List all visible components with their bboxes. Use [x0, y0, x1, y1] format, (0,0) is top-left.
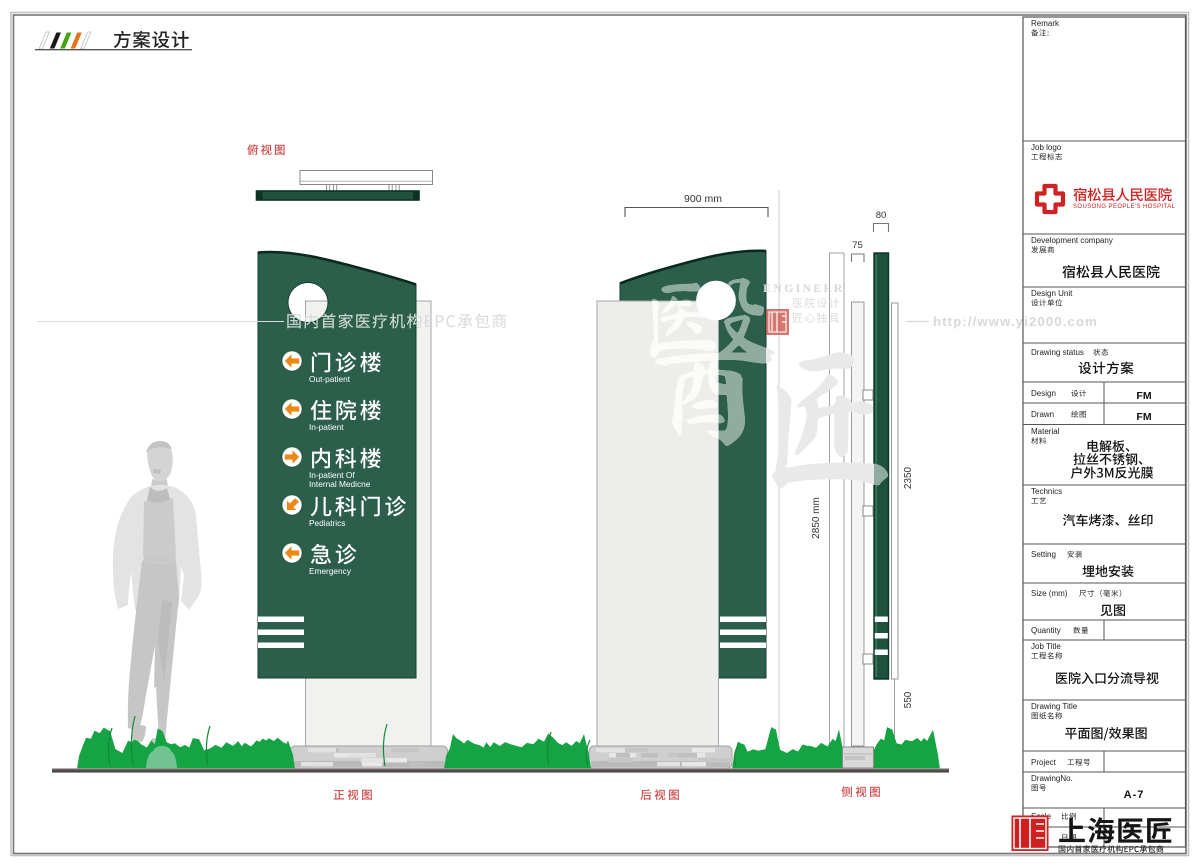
svg-text:Material: Material — [1031, 427, 1060, 436]
svg-text:FM: FM — [1136, 411, 1151, 423]
svg-text:80: 80 — [876, 210, 887, 221]
svg-text:Drawn: Drawn — [1031, 410, 1054, 419]
svg-text:Drawing Title: Drawing Title — [1031, 702, 1078, 711]
svg-text:Setting: Setting — [1031, 550, 1056, 559]
svg-text:In-patient: In-patient — [309, 422, 344, 432]
svg-text:Development company: Development company — [1031, 236, 1113, 245]
svg-text:Remark: Remark — [1031, 19, 1060, 28]
svg-text:Job logo: Job logo — [1031, 143, 1062, 152]
svg-text:Size (mm): Size (mm) — [1031, 589, 1068, 598]
svg-text:Design Unit: Design Unit — [1031, 289, 1073, 298]
svg-text:Project: Project — [1031, 758, 1057, 767]
svg-text:2350: 2350 — [903, 466, 914, 489]
svg-text:900 mm: 900 mm — [684, 193, 722, 205]
svg-text:ENGINEER: ENGINEER — [763, 281, 845, 295]
svg-text:Design: Design — [1031, 389, 1056, 398]
svg-text:Drawing status: Drawing status — [1031, 348, 1084, 357]
svg-text:Internal Medicne: Internal Medicne — [309, 479, 371, 489]
svg-text:FM: FM — [1136, 390, 1151, 402]
svg-text:Technics: Technics — [1031, 487, 1062, 496]
svg-text:Out-patient: Out-patient — [309, 374, 351, 384]
svg-text:Pediatrics: Pediatrics — [309, 518, 345, 528]
svg-text:Job Title: Job Title — [1031, 642, 1061, 651]
svg-text:SOUSONG PEOPLE'S HOSPITAL: SOUSONG PEOPLE'S HOSPITAL — [1073, 204, 1176, 210]
svg-text:DrawingNo.: DrawingNo. — [1031, 774, 1073, 783]
svg-text:75: 75 — [852, 240, 863, 251]
svg-text:http://www.yi2000.com: http://www.yi2000.com — [933, 314, 1098, 329]
svg-text:Quantity: Quantity — [1031, 626, 1061, 635]
svg-text:550: 550 — [903, 691, 914, 708]
svg-text:A-7: A-7 — [1124, 789, 1145, 801]
svg-text:Emergency: Emergency — [309, 566, 352, 576]
svg-text:2850 mm: 2850 mm — [811, 497, 822, 539]
